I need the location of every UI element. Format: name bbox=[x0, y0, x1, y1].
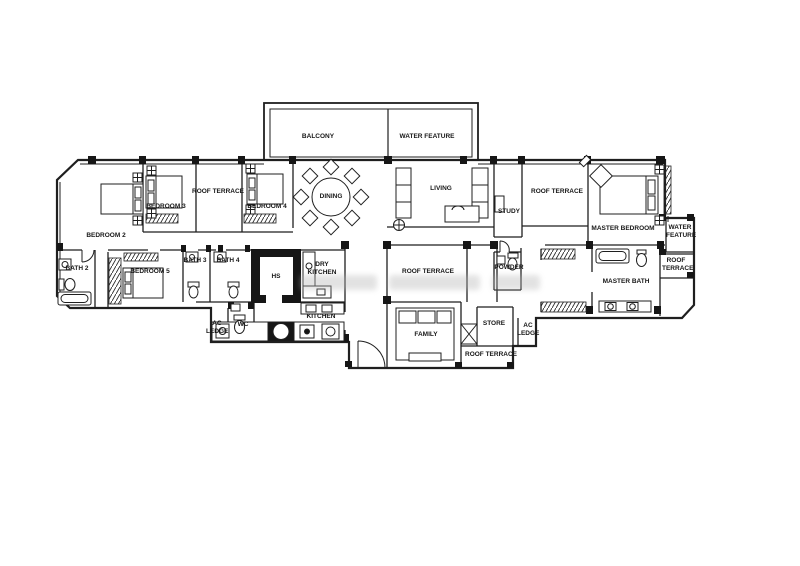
room-label-family: FAMILY bbox=[414, 331, 437, 339]
balcony-structure bbox=[264, 103, 478, 160]
service-shaft bbox=[461, 324, 477, 344]
room-label-master-bedroom: MASTER BEDROOM bbox=[591, 225, 654, 233]
bedroom2-bed bbox=[101, 173, 143, 225]
floor-plan-page: BALCONY WATER FEATURE BEDROOM 2 BEDROOM … bbox=[0, 0, 800, 566]
room-label-bedroom-5: BEDROOM 5 bbox=[130, 268, 169, 276]
room-label-roof-terrace-top-left: ROOF TERRACE bbox=[192, 188, 244, 196]
floor-plan-drawing bbox=[0, 0, 800, 566]
room-label-kitchen: KITCHEN bbox=[307, 313, 336, 321]
room-label-study: STUDY bbox=[498, 208, 520, 216]
master-bed bbox=[579, 155, 664, 225]
room-label-powder: POWDER bbox=[494, 264, 523, 272]
room-label-dining: DINING bbox=[320, 193, 343, 201]
room-label-bath-3: BATH 3 bbox=[184, 257, 207, 265]
room-label-roof-terrace-top-right: ROOF TERRACE bbox=[531, 188, 583, 196]
living-sofa-set bbox=[394, 168, 489, 231]
room-label-bath-2: BATH 2 bbox=[66, 265, 89, 273]
room-label-ac-ledge-left: AC LEDGE bbox=[206, 320, 228, 336]
room-label-bath-4: BATH 4 bbox=[217, 257, 240, 265]
room-label-master-bath: MASTER BATH bbox=[603, 278, 650, 286]
room-label-bedroom-3: BEDROOM 3 bbox=[146, 203, 185, 211]
room-label-store: STORE bbox=[483, 320, 505, 328]
room-label-water-feature-top: WATER FEATURE bbox=[399, 133, 454, 141]
room-label-balcony: BALCONY bbox=[302, 133, 334, 141]
room-label-roof-terrace-center: ROOF TERRACE bbox=[402, 268, 454, 276]
room-label-bedroom-2: BEDROOM 2 bbox=[86, 232, 125, 240]
room-label-living: LIVING bbox=[430, 185, 452, 193]
room-label-wc: WC bbox=[238, 321, 249, 329]
room-label-ac-ledge-right: AC LEDGE bbox=[517, 322, 539, 338]
room-label-roof-terrace-side: ROOF TERRACE bbox=[662, 257, 690, 273]
room-label-roof-terrace-bottom: ROOF TERRACE bbox=[465, 351, 517, 359]
room-label-hs: HS bbox=[271, 273, 280, 281]
room-label-bedroom-4: BEDROOM 4 bbox=[247, 203, 286, 211]
room-label-water-feature-side: WATER FEATURE bbox=[666, 224, 694, 240]
room-label-dry-kitchen: DRY KITCHEN bbox=[306, 261, 338, 277]
